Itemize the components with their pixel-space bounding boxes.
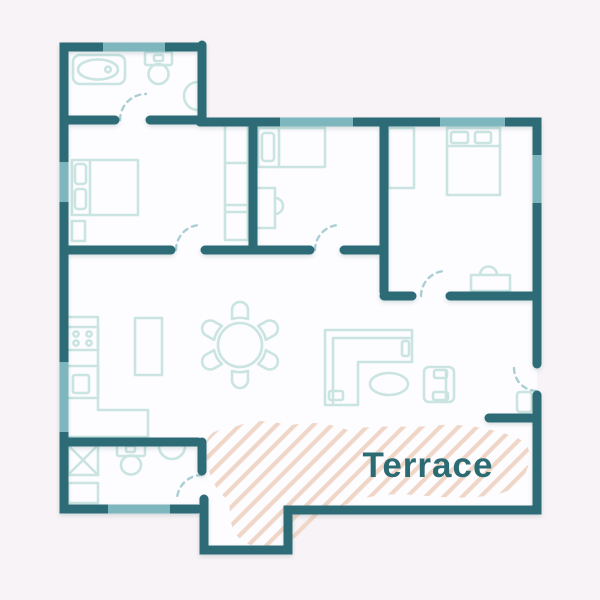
floor-plan: Terrace [0,0,600,600]
floor-plan-canvas: Terrace [0,0,600,600]
terrace-label: Terrace [363,446,494,485]
